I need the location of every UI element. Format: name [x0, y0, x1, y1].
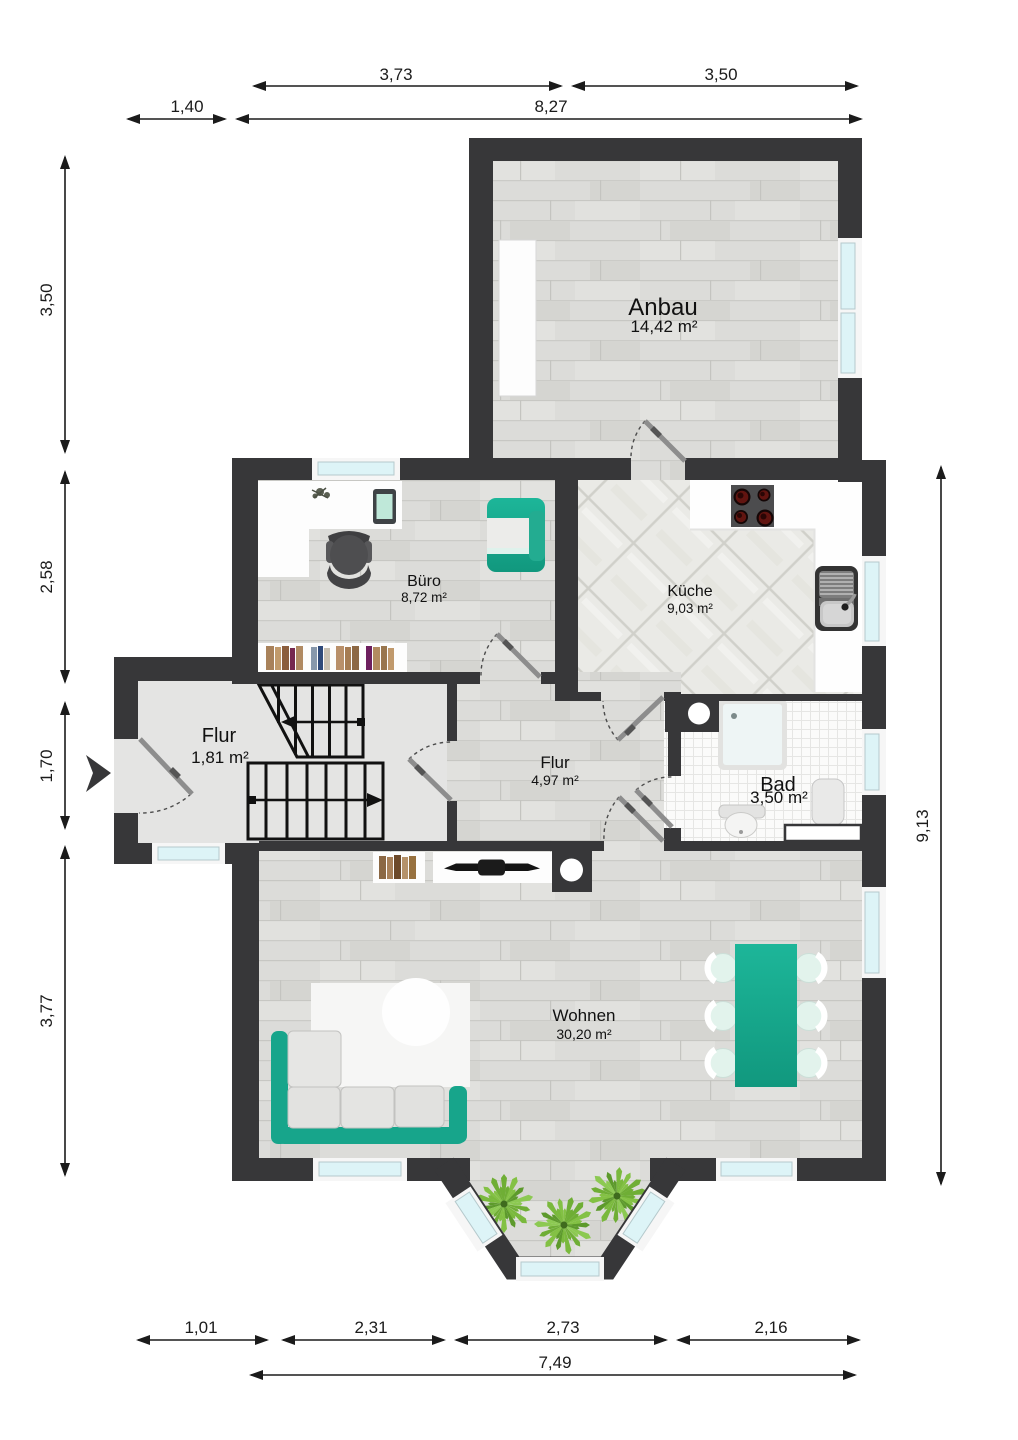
svg-text:3,77: 3,77	[37, 994, 56, 1027]
svg-text:3,50: 3,50	[704, 65, 737, 84]
svg-text:14,42 m²: 14,42 m²	[630, 317, 697, 336]
svg-text:1,81 m²: 1,81 m²	[191, 748, 249, 767]
svg-text:9,03 m²: 9,03 m²	[667, 601, 713, 616]
svg-text:1,40: 1,40	[170, 97, 203, 116]
svg-text:2,58: 2,58	[37, 560, 56, 593]
svg-text:4,97 m²: 4,97 m²	[531, 772, 579, 788]
svg-text:30,20 m²: 30,20 m²	[556, 1026, 612, 1042]
svg-text:3,73: 3,73	[379, 65, 412, 84]
svg-text:2,73: 2,73	[546, 1318, 579, 1337]
svg-text:1,70: 1,70	[37, 749, 56, 782]
svg-text:2,16: 2,16	[754, 1318, 787, 1337]
svg-text:Büro: Büro	[407, 573, 441, 590]
svg-text:3,50: 3,50	[37, 283, 56, 316]
svg-text:3,50 m²: 3,50 m²	[750, 788, 808, 807]
svg-text:7,49: 7,49	[538, 1353, 571, 1372]
svg-text:Flur: Flur	[540, 753, 570, 772]
svg-text:Küche: Küche	[667, 583, 712, 600]
svg-text:9,13: 9,13	[913, 809, 932, 842]
svg-text:Wohnen: Wohnen	[552, 1006, 615, 1025]
svg-text:8,72 m²: 8,72 m²	[401, 590, 447, 605]
svg-text:1,01: 1,01	[184, 1318, 217, 1337]
svg-text:8,27: 8,27	[534, 97, 567, 116]
svg-text:Flur: Flur	[202, 725, 237, 747]
svg-text:2,31: 2,31	[354, 1318, 387, 1337]
